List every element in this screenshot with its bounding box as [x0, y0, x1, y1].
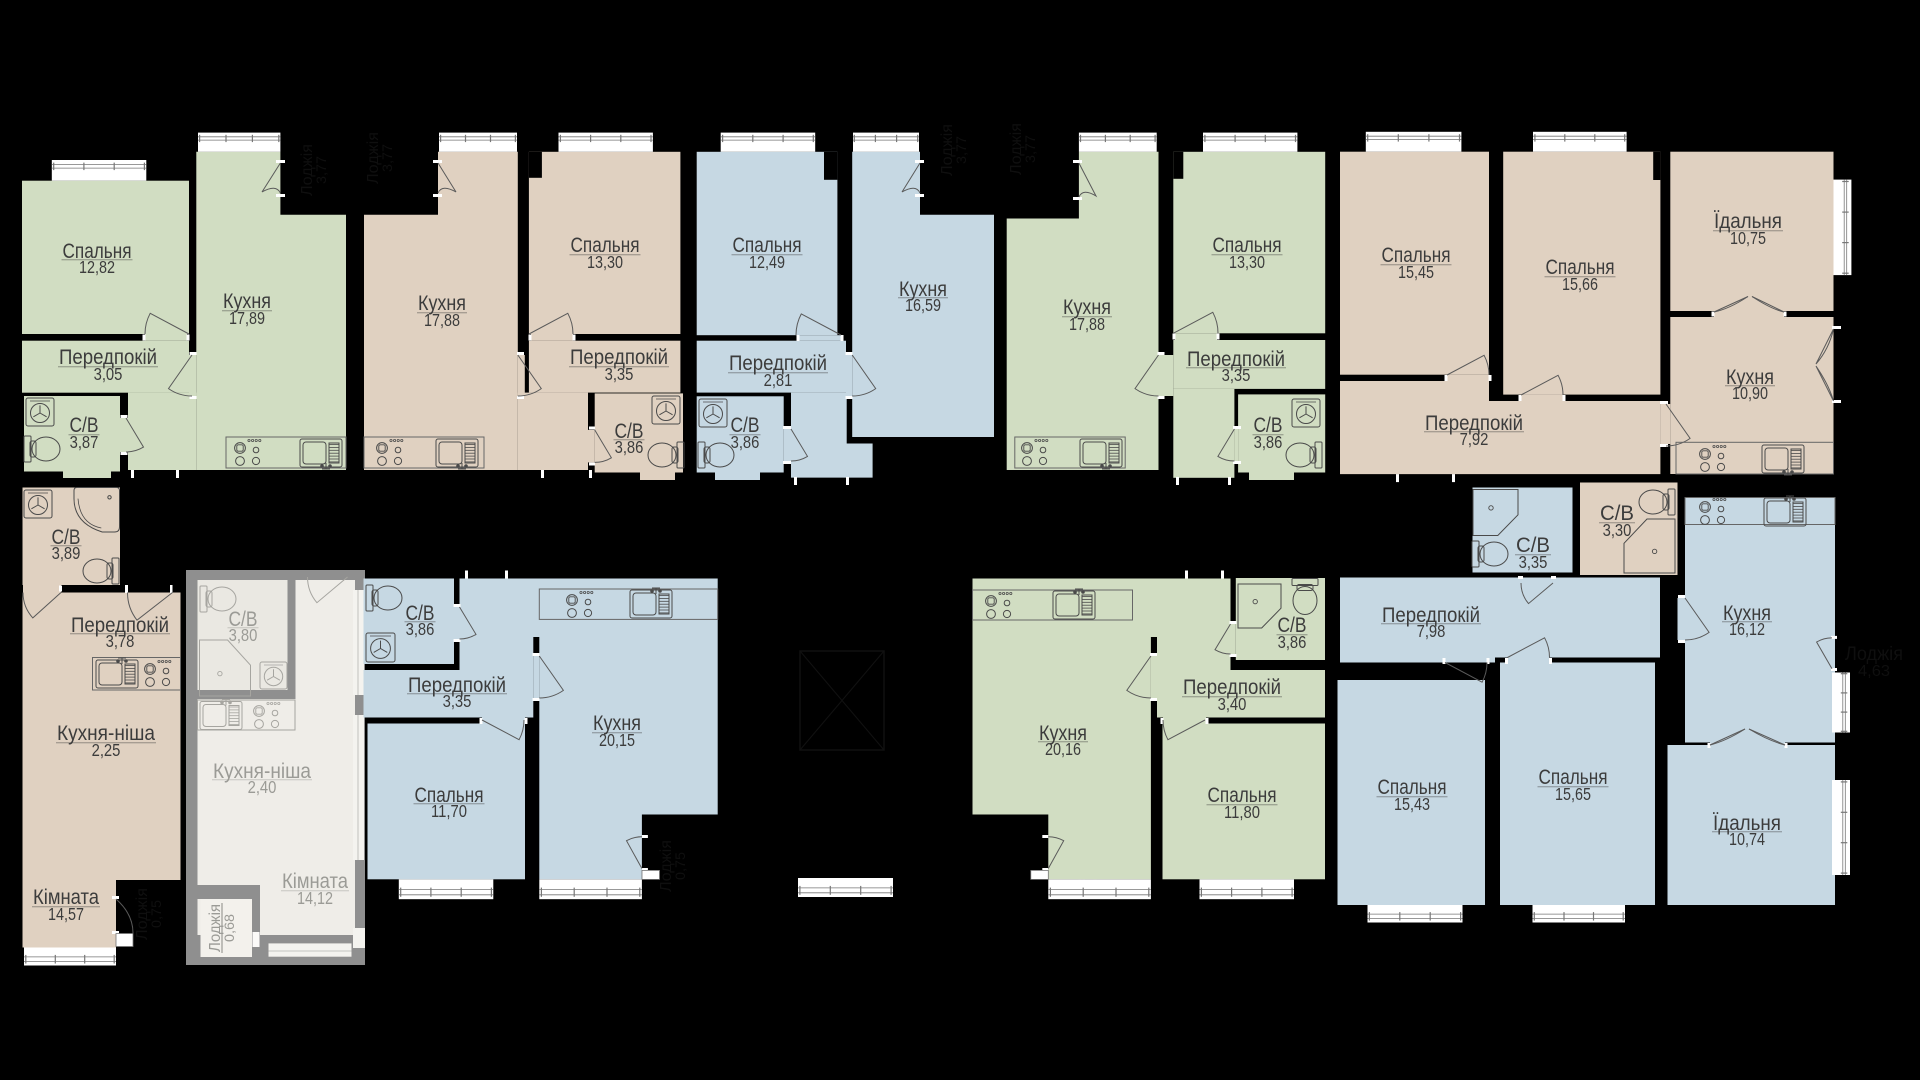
svg-text:16,12: 16,12	[1729, 619, 1765, 639]
svg-text:0,75: 0,75	[148, 900, 164, 928]
svg-text:15,65: 15,65	[1555, 784, 1591, 804]
svg-text:3,89: 3,89	[52, 543, 81, 563]
svg-text:3,35: 3,35	[443, 691, 472, 711]
svg-text:12,49: 12,49	[749, 252, 785, 272]
svg-text:16,59: 16,59	[905, 295, 941, 315]
svg-text:3,86: 3,86	[1254, 432, 1283, 452]
svg-text:3,35: 3,35	[605, 364, 634, 384]
svg-text:15,43: 15,43	[1394, 794, 1430, 814]
svg-text:17,89: 17,89	[229, 308, 265, 328]
svg-text:3,86: 3,86	[1278, 632, 1307, 652]
svg-text:3,86: 3,86	[731, 432, 760, 452]
svg-text:7,98: 7,98	[1417, 621, 1446, 641]
svg-text:3,78: 3,78	[106, 631, 135, 651]
svg-text:13,30: 13,30	[587, 252, 623, 272]
svg-text:14,12: 14,12	[297, 888, 333, 908]
svg-text:12,82: 12,82	[79, 257, 115, 277]
svg-text:3,86: 3,86	[615, 437, 644, 457]
svg-text:3,35: 3,35	[1222, 365, 1251, 385]
svg-text:7,92: 7,92	[1460, 429, 1489, 449]
svg-text:0,75: 0,75	[672, 852, 688, 880]
svg-text:3,40: 3,40	[1218, 694, 1247, 714]
svg-text:3,87: 3,87	[70, 432, 99, 452]
svg-text:0,68: 0,68	[221, 914, 237, 942]
svg-text:3,77: 3,77	[379, 144, 395, 172]
svg-text:Лоджія: Лоджія	[1845, 644, 1903, 665]
svg-text:14,57: 14,57	[48, 904, 84, 924]
svg-text:4,63: 4,63	[1858, 663, 1890, 680]
svg-text:3,77: 3,77	[953, 136, 969, 164]
svg-text:10,74: 10,74	[1729, 829, 1765, 849]
svg-text:17,88: 17,88	[1069, 314, 1105, 334]
svg-text:3,80: 3,80	[229, 625, 258, 645]
svg-text:20,16: 20,16	[1045, 739, 1081, 759]
svg-text:2,81: 2,81	[764, 370, 793, 390]
svg-text:3,77: 3,77	[313, 156, 329, 184]
svg-text:3,05: 3,05	[94, 364, 123, 384]
svg-text:3,77: 3,77	[1022, 135, 1038, 163]
svg-text:10,75: 10,75	[1730, 228, 1766, 248]
svg-text:15,66: 15,66	[1562, 274, 1598, 294]
svg-text:3,86: 3,86	[406, 619, 435, 639]
svg-text:13,30: 13,30	[1229, 252, 1265, 272]
svg-text:11,70: 11,70	[431, 801, 467, 821]
svg-text:17,88: 17,88	[424, 310, 460, 330]
svg-text:2,25: 2,25	[92, 740, 121, 760]
svg-text:15,45: 15,45	[1398, 262, 1434, 282]
svg-text:2,40: 2,40	[248, 777, 277, 797]
svg-text:11,80: 11,80	[1224, 802, 1260, 822]
svg-text:3,30: 3,30	[1603, 520, 1632, 540]
svg-text:3,35: 3,35	[1519, 552, 1548, 572]
svg-text:10,90: 10,90	[1732, 383, 1768, 403]
svg-text:20,15: 20,15	[599, 730, 635, 750]
